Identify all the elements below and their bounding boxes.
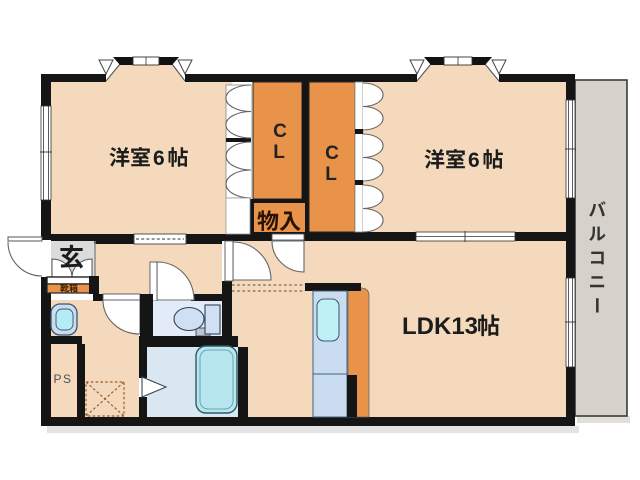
svg-text:6: 6	[153, 147, 165, 170]
svg-text:LDK13: LDK13	[402, 313, 478, 340]
svg-text:L: L	[273, 142, 285, 163]
svg-text:PS: PS	[53, 372, 72, 386]
svg-text:C: C	[325, 143, 339, 164]
svg-text:L: L	[325, 164, 337, 185]
svg-text:6: 6	[468, 149, 480, 172]
svg-text:C: C	[273, 121, 287, 142]
